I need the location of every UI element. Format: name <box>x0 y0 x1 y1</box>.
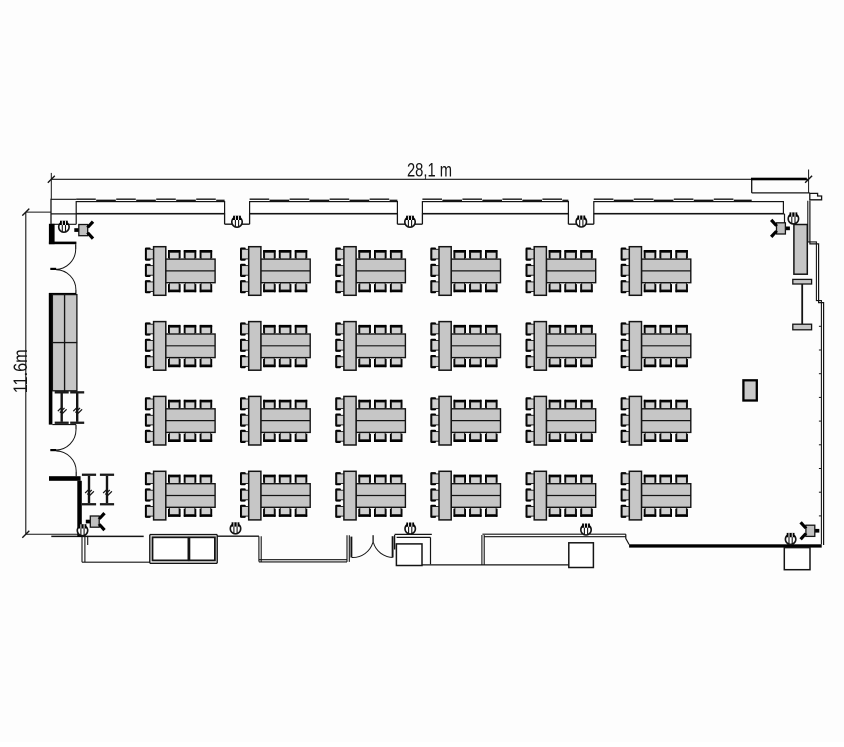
svg-text:28,1 m: 28,1 m <box>407 160 452 182</box>
svg-text:11.6m: 11.6m <box>10 349 32 393</box>
